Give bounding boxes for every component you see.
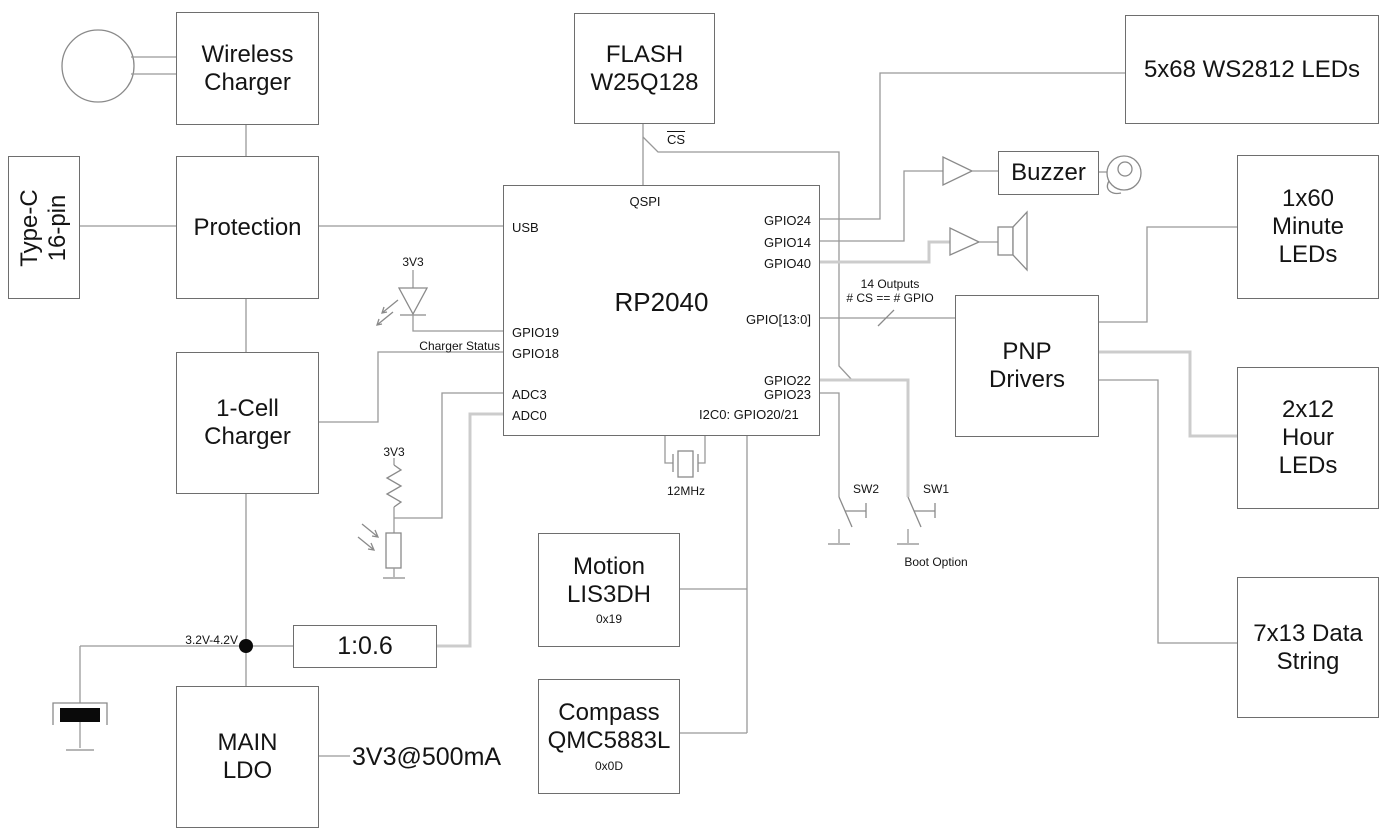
block-label: 7x13 Data String [1253, 620, 1362, 676]
block-buzzer: Buzzer [998, 151, 1099, 195]
block-divider-ratio: 1:0.6 [293, 625, 437, 668]
block-label: FLASH W25Q128 [590, 41, 698, 97]
pin-gpio23: GPIO23 [764, 387, 811, 402]
net-label-cs: CS [667, 132, 685, 147]
switch-sw1-boot [818, 380, 935, 544]
amplifier-icon [943, 157, 972, 185]
block-ws2812-leds: 5x68 WS2812 LEDs [1125, 15, 1379, 124]
pin-gpio40: GPIO40 [764, 256, 811, 271]
net-charger-status [317, 352, 503, 422]
block-wireless-charger: Wireless Charger [176, 12, 319, 125]
block-label: MAIN LDO [218, 729, 278, 785]
junction-dot [239, 639, 253, 653]
schematic-canvas: Wireless Charger Type-C 16-pin Protectio… [0, 0, 1385, 837]
net-gpio24-ws2812 [818, 73, 1125, 219]
net-data-string [1097, 380, 1237, 643]
block-label: 1:0.6 [337, 632, 393, 661]
label-sw1: SW1 [923, 482, 949, 496]
block-label: Compass QMC5883L [548, 699, 671, 755]
net-label-3v3-500ma: 3V3@500mA [352, 743, 501, 772]
pin-gpio14: GPIO14 [764, 235, 811, 250]
coil-icon [62, 30, 134, 102]
speaker-icon [998, 212, 1027, 270]
buzzer-icon [1107, 156, 1141, 193]
block-label: 1-Cell Charger [204, 395, 291, 451]
pin-adc3: ADC3 [512, 387, 547, 402]
battery-icon [53, 703, 107, 750]
led-icon [377, 270, 503, 331]
pin-gpio19: GPIO19 [512, 325, 559, 340]
pin-gpio24: GPIO24 [764, 213, 811, 228]
net-minute-leds [1097, 227, 1237, 322]
light-emission-arrow [377, 312, 393, 325]
block-label: Type-C 16-pin [16, 158, 72, 298]
i2c-address: 0x0D [595, 760, 623, 774]
block-label: Buzzer [1011, 159, 1086, 187]
net-adc0-vbat-sense [435, 414, 503, 646]
net-label-12mhz: 12MHz [667, 484, 705, 498]
light-sensor-circuit [358, 393, 503, 578]
i2c-address: 0x19 [596, 613, 622, 627]
net-wireless-coil [62, 30, 176, 102]
light-emission-arrow [382, 300, 398, 313]
block-type-c: Type-C 16-pin [8, 156, 80, 299]
resistor-icon [387, 465, 401, 507]
pin-usb: USB [512, 220, 539, 235]
net-i2c0 [678, 436, 747, 733]
block-rp2040: RP2040 QSPI USB GPIO19 GPIO18 ADC3 ADC0 … [503, 185, 820, 436]
pin-gpio18: GPIO18 [512, 346, 559, 361]
pin-qspi: QSPI [629, 194, 660, 209]
switch-blade [908, 497, 921, 527]
net-label-battery-voltage: 3.2V-4.2V [185, 633, 238, 647]
light-incident-arrow [362, 524, 378, 537]
net-label-3v3: 3V3 [383, 445, 404, 459]
block-label: Protection [193, 214, 301, 242]
light-incident-arrow [358, 537, 374, 550]
block-label: 1x60 Minute LEDs [1272, 185, 1344, 268]
label-boot-option: Boot Option [904, 555, 967, 569]
net-label-3v3: 3V3 [402, 255, 423, 269]
block-label: 5x68 WS2812 LEDs [1144, 56, 1360, 84]
amplifier-icon [950, 228, 979, 255]
photoresistor-icon [386, 533, 401, 568]
block-label: PNP Drivers [989, 338, 1065, 394]
block-compass-sensor: Compass QMC5883L 0x0D [538, 679, 680, 794]
label-sw2: SW2 [853, 482, 879, 496]
block-label: Motion LIS3DH [567, 553, 651, 609]
block-label: Wireless Charger [201, 41, 293, 97]
pin-adc0: ADC0 [512, 408, 547, 423]
net-label-charger-status: Charger Status [419, 339, 500, 353]
block-protection: Protection [176, 156, 319, 299]
block-data-string: 7x13 Data String [1237, 577, 1379, 718]
block-motion-sensor: Motion LIS3DH 0x19 [538, 533, 680, 647]
pin-gpio22: GPIO22 [764, 373, 811, 388]
switch-blade [839, 497, 852, 527]
label-14-outputs: 14 Outputs # CS == # GPIO [846, 277, 933, 305]
block-minute-leds: 1x60 Minute LEDs [1237, 155, 1379, 299]
block-pnp-drivers: PNP Drivers [955, 295, 1099, 437]
pin-gpio-13-0: GPIO[13:0] [746, 312, 811, 327]
pin-i2c0: I2C0: GPIO20/21 [699, 407, 799, 422]
block-hour-leds: 2x12 Hour LEDs [1237, 367, 1379, 509]
net-hour-leds [1097, 352, 1237, 436]
switch-sw2 [818, 393, 866, 544]
crystal-icon [665, 435, 705, 477]
block-1-cell-charger: 1-Cell Charger [176, 352, 319, 494]
block-flash: FLASH W25Q128 [574, 13, 715, 124]
block-label: 2x12 Hour LEDs [1279, 396, 1338, 479]
block-main-ldo: MAIN LDO [176, 686, 319, 828]
